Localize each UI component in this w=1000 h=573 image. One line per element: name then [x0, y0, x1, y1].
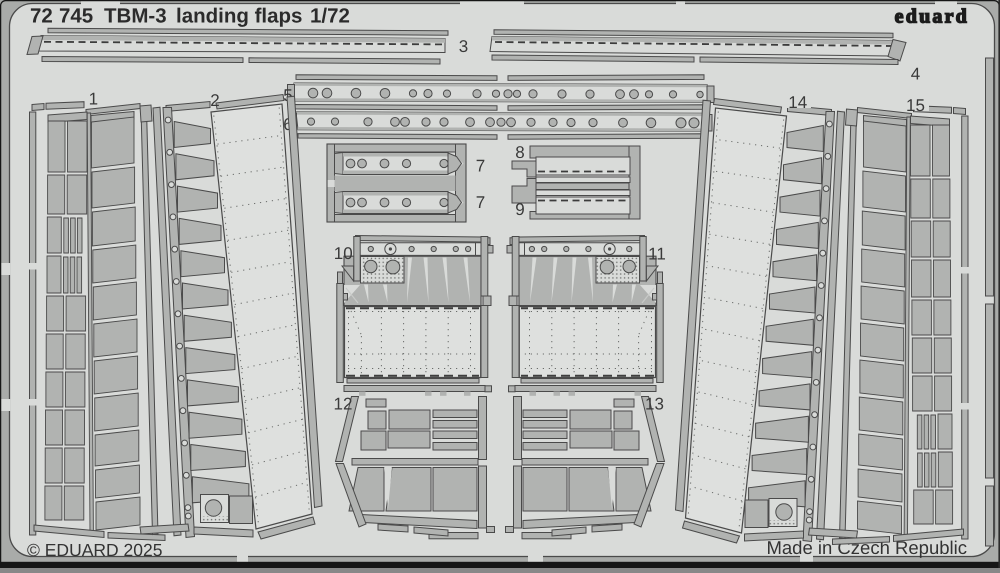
svg-text:9: 9 [515, 200, 524, 219]
svg-text:14: 14 [788, 93, 807, 112]
svg-text:1: 1 [89, 90, 98, 109]
svg-text:7: 7 [476, 193, 485, 212]
svg-text:72745TBM-3landing flaps1/72: 72745TBM-3landing flaps1/72 [30, 5, 350, 28]
svg-text:2: 2 [210, 91, 219, 110]
svg-text:10: 10 [334, 244, 353, 263]
svg-text:8: 8 [515, 143, 524, 162]
svg-text:12: 12 [334, 395, 353, 414]
svg-text:eduard: eduard [895, 6, 969, 28]
svg-text:© EDUARD 2025: © EDUARD 2025 [27, 540, 162, 560]
svg-text:7: 7 [476, 157, 485, 176]
svg-text:11: 11 [648, 245, 666, 264]
svg-text:15: 15 [906, 96, 925, 115]
svg-text:3: 3 [459, 37, 468, 56]
svg-text:13: 13 [645, 395, 664, 414]
svg-text:4: 4 [911, 65, 920, 84]
